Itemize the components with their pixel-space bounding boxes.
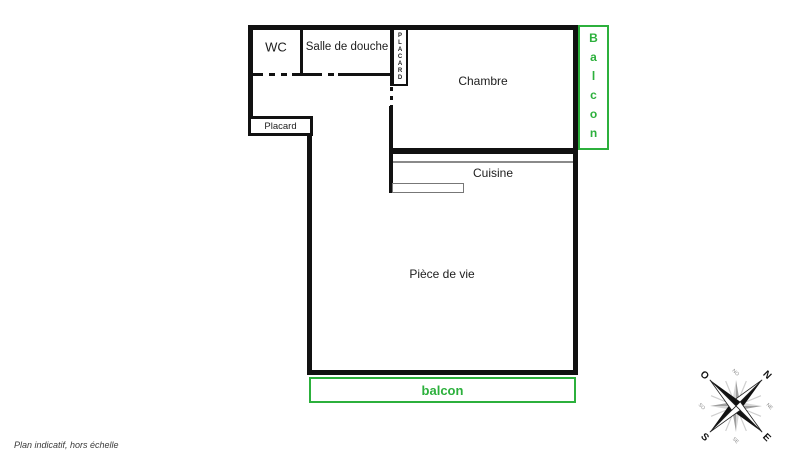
compass-label-southwest: SO: [697, 402, 706, 411]
floor-plan: PLACARD Placard Balcon balcon WC Salle d…: [0, 0, 800, 460]
wall-top: [248, 25, 578, 30]
wall-wet-c: [338, 73, 390, 76]
closet-bedroom-box: PLACARD: [390, 28, 408, 86]
closet-bedroom-label: PLACARD: [397, 33, 403, 82]
compass-label-east: E: [760, 432, 773, 445]
wall-bottom: [307, 370, 578, 375]
compass-label-north: N: [760, 369, 773, 382]
door-opening-wc: [257, 73, 292, 76]
compass-label-northwest: NO: [731, 368, 741, 378]
wall-left-upper: [248, 25, 253, 118]
compass-label-south: S: [698, 431, 711, 444]
wall-kitchen: [389, 148, 578, 154]
compass-rose: N E S O NO NE SE SO: [686, 356, 786, 456]
balcony-bottom-label: balcon: [422, 383, 464, 398]
kitchen-counter-line: [393, 161, 573, 163]
wall-wet-a: [250, 73, 257, 76]
room-label-bedroom: Chambre: [458, 74, 507, 88]
room-label-living: Pièce de vie: [409, 267, 474, 281]
balcony-right: Balcon: [578, 25, 609, 150]
room-label-wc: WC: [265, 40, 287, 55]
compass-label-northeast: NE: [765, 402, 775, 412]
closet-hall-label: Placard: [264, 121, 296, 132]
balcony-bottom: balcon: [309, 377, 576, 403]
room-label-kitchen: Cuisine: [473, 166, 513, 180]
balcony-right-label: Balcon: [588, 31, 600, 145]
wall-left-lower: [307, 134, 312, 375]
compass-label-southeast: SE: [731, 436, 740, 445]
closet-hall-box: Placard: [248, 116, 313, 136]
door-opening-bedroom: [390, 87, 393, 107]
kitchen-counter: [392, 183, 464, 193]
plan-disclaimer: Plan indicatif, hors échelle: [14, 440, 119, 450]
door-opening-shower: [316, 73, 338, 76]
compass-label-west: O: [698, 369, 711, 382]
wall-wet-b: [292, 73, 316, 76]
wall-wc-divider: [300, 30, 303, 75]
room-label-shower: Salle de douche: [306, 41, 388, 53]
